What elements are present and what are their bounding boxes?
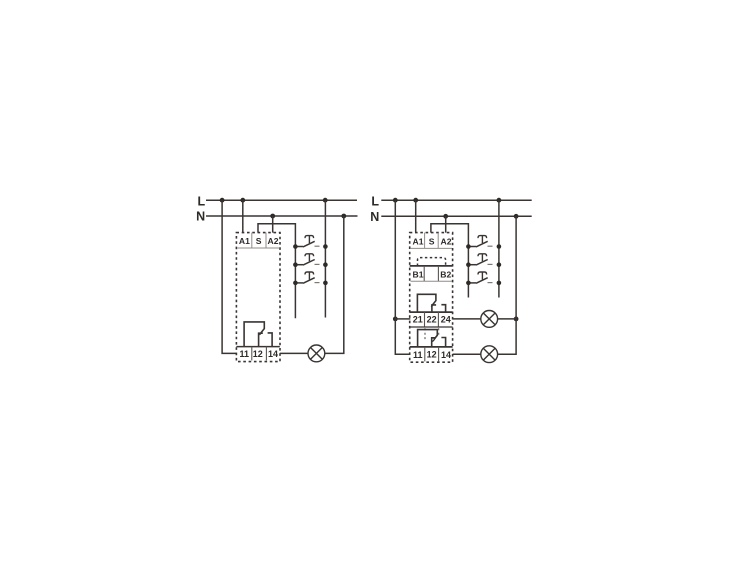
svg-text:24: 24	[441, 315, 451, 325]
svg-text:11: 11	[413, 350, 423, 360]
svg-text:14: 14	[441, 350, 451, 360]
svg-text:S: S	[256, 236, 262, 246]
svg-text:14: 14	[268, 349, 278, 359]
svg-text:12: 12	[253, 349, 263, 359]
svg-text:21: 21	[413, 315, 423, 325]
svg-text:L: L	[197, 194, 205, 208]
svg-text:A1: A1	[239, 236, 250, 246]
svg-text:A2: A2	[268, 236, 279, 246]
svg-text:S: S	[429, 237, 435, 247]
svg-text:12: 12	[427, 350, 437, 360]
svg-text:B2: B2	[440, 270, 451, 280]
svg-text:N: N	[196, 210, 205, 224]
svg-text:N: N	[370, 210, 379, 224]
svg-text:B1: B1	[413, 270, 424, 280]
svg-text:A1: A1	[413, 237, 424, 247]
svg-text:11: 11	[239, 349, 249, 359]
svg-text:A2: A2	[441, 237, 452, 247]
svg-text:L: L	[371, 194, 379, 208]
svg-text:22: 22	[427, 314, 437, 324]
